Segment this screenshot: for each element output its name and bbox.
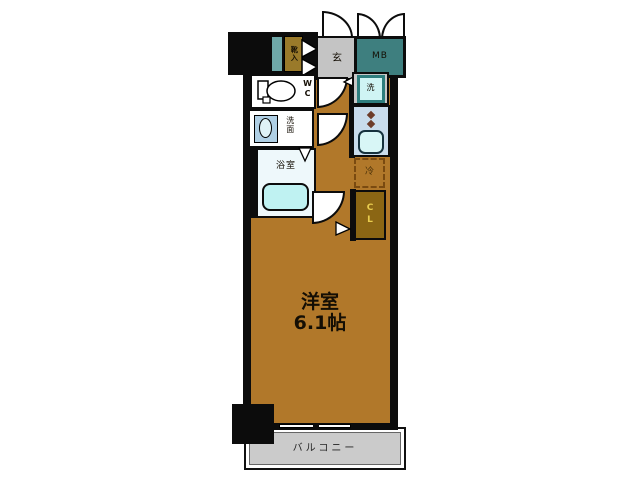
washroom-label: 洗面 (285, 116, 294, 134)
washer-label: 洗 (367, 84, 375, 93)
balcony-label: バルコニー (293, 443, 358, 454)
main-room-size: 6.1帖 (258, 313, 382, 334)
front-door-swing-icon (322, 11, 353, 38)
closet: CL (354, 190, 386, 240)
main-room-label: 洋室 6.1帖 (258, 292, 382, 334)
toilet-icon (255, 78, 299, 106)
kitchen-sink-icon (358, 130, 384, 154)
fridge-space: 冷 (354, 158, 385, 188)
burner-icon (367, 111, 375, 119)
pillar (232, 404, 274, 444)
bath-door-marker-icon (298, 147, 313, 163)
wc-room: WC (250, 74, 316, 109)
burner-icon (367, 120, 375, 128)
closet-label: CL (365, 203, 375, 227)
fridge-label: 冷 (365, 168, 374, 178)
main-room-name: 洋室 (258, 292, 382, 313)
wc-label: WC (302, 79, 311, 99)
genkan-label: 玄 (332, 53, 342, 64)
washroom: 洗面 (248, 109, 314, 148)
bathtub-icon (262, 183, 309, 211)
wall-right (390, 36, 398, 428)
window-divider (313, 423, 319, 430)
kitchen (352, 105, 390, 157)
washer-pan: 洗 (352, 72, 389, 105)
bathroom-label: 浴室 (258, 162, 314, 172)
basin-icon (254, 115, 278, 143)
teal-strip (272, 37, 282, 71)
meter-box-label: MB (372, 52, 388, 62)
shoe-box-label: 靴入 (290, 46, 298, 62)
door-marker-right-icon (334, 221, 352, 237)
floorplan-canvas: バルコニー 靴入 玄 MB WC (0, 0, 640, 480)
washer-box: 洗 (357, 75, 385, 103)
